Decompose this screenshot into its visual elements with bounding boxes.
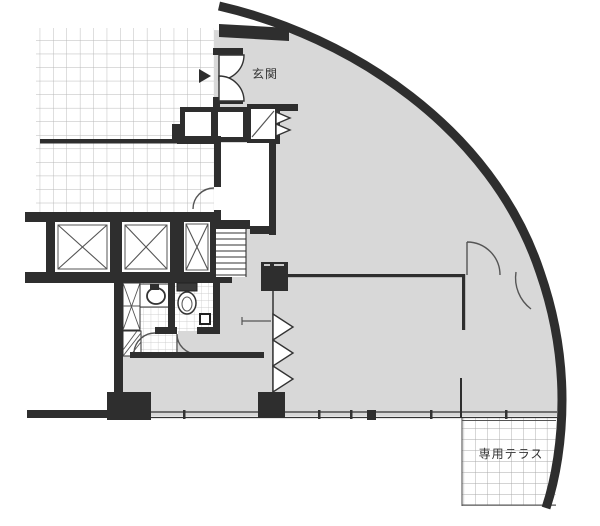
corridor-wall <box>40 139 180 144</box>
floor-plan-drawing: 専用テラス 玄関 <box>0 0 600 526</box>
elevator-1-icon <box>55 222 110 272</box>
elevator-wall <box>46 212 55 283</box>
column <box>261 262 288 291</box>
hall-wall <box>130 352 264 358</box>
divider-wall-stub <box>462 274 465 330</box>
doorway-gap <box>214 187 221 210</box>
staircase-icon <box>213 220 250 277</box>
vestibule-wall <box>177 136 221 144</box>
elevator-3-icon <box>184 222 210 272</box>
bathroom-wall-inner <box>197 327 220 334</box>
wall-stub-right <box>280 104 298 111</box>
column <box>258 392 285 418</box>
elevator-bank <box>25 212 232 283</box>
private-terrace: 専用テラス <box>462 418 556 506</box>
toilet-partition-wall <box>168 283 175 331</box>
elevator-2-icon <box>122 222 170 272</box>
terrace-label: 専用テラス <box>479 447 544 461</box>
inner-hall-wall-right <box>269 140 276 235</box>
bathroom-wall-inner <box>155 327 177 334</box>
divider-wall <box>287 274 464 277</box>
washbasin-icon <box>140 284 172 307</box>
column <box>107 392 151 420</box>
door-jamb-top <box>213 48 243 55</box>
entrance-label: 玄関 <box>252 66 278 81</box>
toilet-icon <box>177 283 197 314</box>
entrance-closets <box>177 104 298 144</box>
floor-plan: 専用テラス 玄関 <box>0 0 600 526</box>
duct-shaft-icon <box>123 283 140 330</box>
elevator-wall-bottom <box>25 272 232 283</box>
bathroom-wall-right <box>213 283 220 333</box>
elevator-wall <box>110 212 122 283</box>
inner-hall-wall-bottom <box>250 226 276 234</box>
stair-wall <box>213 220 250 229</box>
elevator-wall <box>170 212 184 283</box>
hand-basin-icon <box>200 314 210 324</box>
terrace-grid <box>462 418 556 506</box>
slab-edge-wall <box>27 410 115 418</box>
inner-hall-floor <box>221 143 269 227</box>
